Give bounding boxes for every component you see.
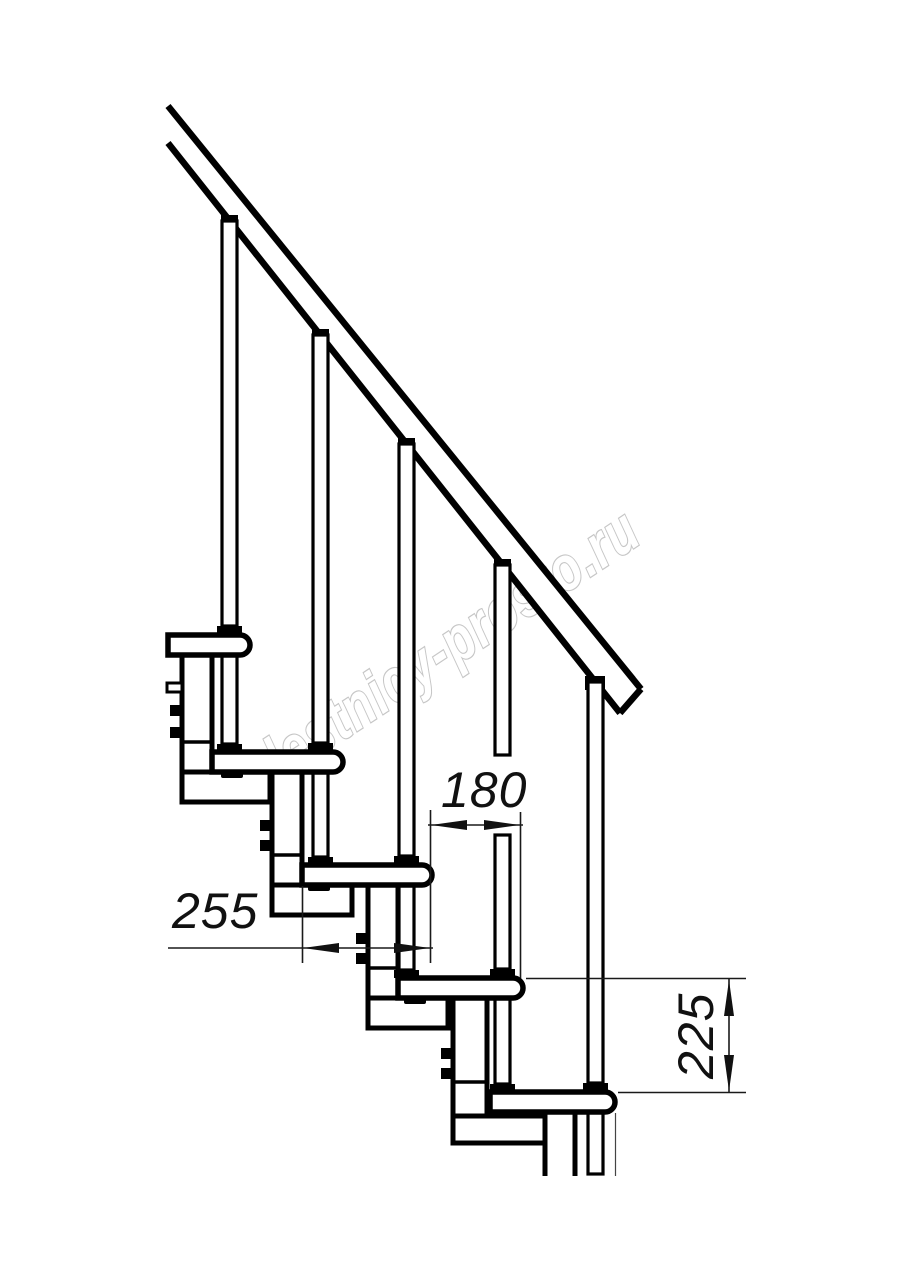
tread-bolt	[496, 1110, 518, 1118]
dimension-going: 180	[428, 762, 527, 978]
staircase-drawing-canvas: lestnicy-prosto.ru	[0, 0, 914, 1280]
baluster-1-lower	[217, 655, 242, 752]
tread-bolt	[404, 996, 426, 1004]
tread-3	[302, 865, 432, 885]
clamp-bolt	[356, 953, 368, 964]
arrowhead-up	[724, 980, 734, 1016]
arrowhead-left	[303, 943, 339, 953]
tread-2	[212, 752, 343, 772]
baluster-4-lower	[490, 998, 515, 1092]
rise-value: 225	[668, 993, 724, 1080]
baluster-1	[217, 215, 242, 635]
going-value: 180	[441, 762, 527, 818]
baluster-2	[308, 329, 333, 752]
baluster-2-lower	[308, 772, 333, 865]
support-bracket-2	[260, 770, 352, 915]
baluster-base-flange	[583, 1083, 608, 1092]
arrowhead-left	[431, 820, 467, 830]
baluster-5	[583, 676, 608, 1092]
clamp-bolt	[441, 1068, 453, 1079]
clamp-bolt	[170, 705, 182, 716]
tread-bolt	[308, 883, 330, 891]
tread-1	[168, 635, 250, 655]
tread-5	[490, 1092, 615, 1112]
dimension-rise: 225	[526, 978, 746, 1093]
arrowhead-right	[484, 820, 520, 830]
staircase-elevation-drawing: lestnicy-prosto.ru	[0, 0, 914, 1280]
adjuster-tab	[167, 683, 182, 692]
baluster-base-flange	[490, 969, 515, 978]
support-bracket-1	[167, 655, 270, 802]
support-bracket-5-cut	[545, 1113, 575, 1176]
baluster-5-lower	[588, 1112, 603, 1174]
tread-4	[398, 978, 523, 998]
baluster-base-flange	[394, 856, 419, 865]
support-bracket-4	[441, 996, 545, 1143]
tread-bolt	[221, 770, 243, 778]
clamp-bolt	[260, 820, 272, 831]
clamp-bolt	[260, 840, 272, 851]
baluster-3	[394, 438, 419, 865]
clamp-bolt	[170, 727, 182, 738]
clamp-bolt	[441, 1048, 453, 1059]
tread-depth-value: 255	[171, 883, 258, 939]
clamp-bolt	[356, 933, 368, 944]
arrowhead-down	[724, 1055, 734, 1091]
baluster-base-flange	[308, 743, 333, 752]
baluster-base-flange	[217, 626, 242, 635]
baluster-3-lower	[394, 885, 419, 978]
